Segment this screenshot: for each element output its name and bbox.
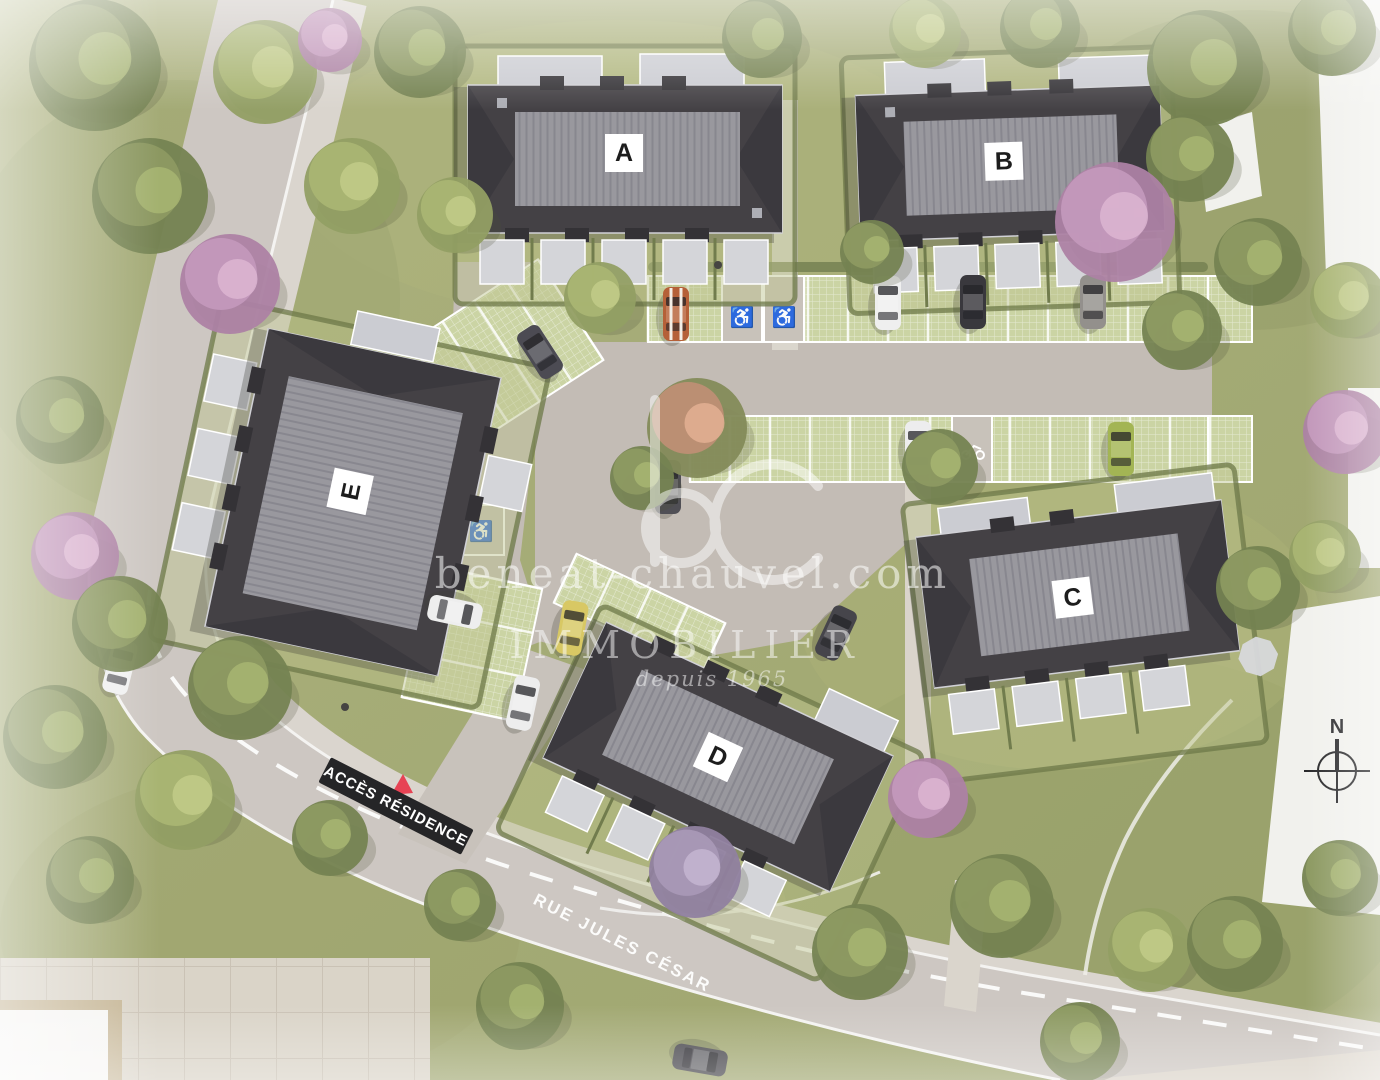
site-plan-image: ♿ ♿ ♿ (0, 0, 1380, 1080)
edge-fade (0, 0, 1380, 1080)
site-plan-svg: ♿ ♿ ♿ (0, 0, 1380, 1080)
